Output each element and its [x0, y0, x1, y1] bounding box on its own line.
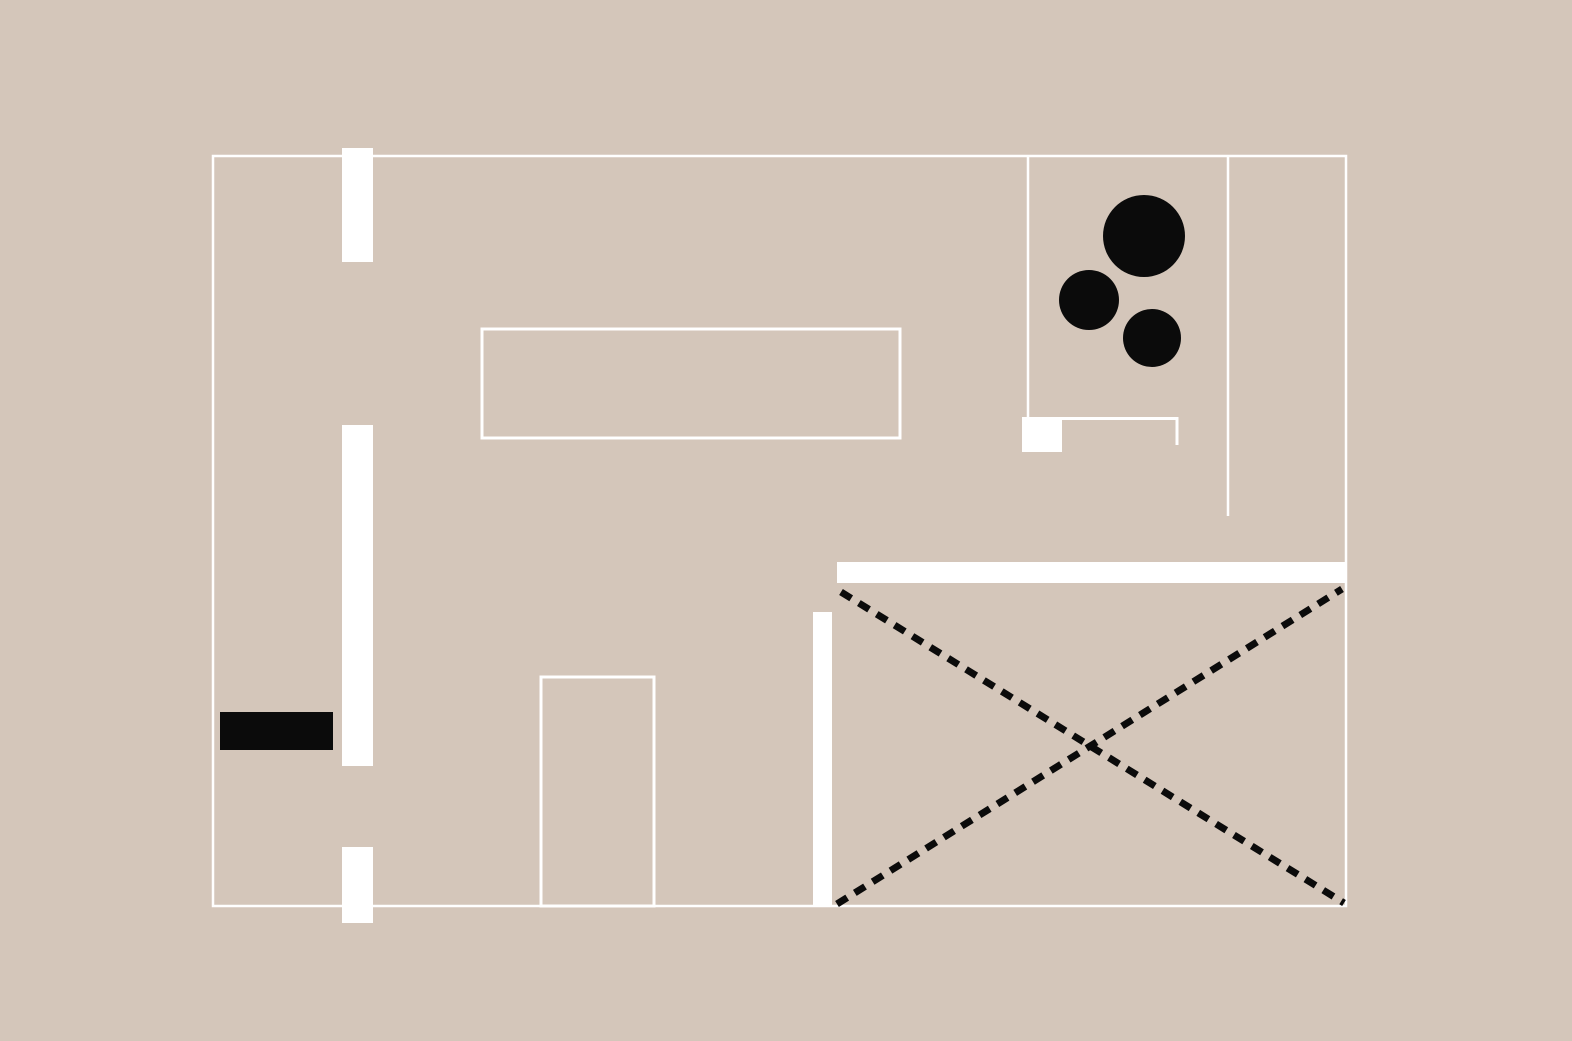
furniture-circle-medium — [1059, 270, 1119, 330]
pillar-wall-top-left — [342, 148, 373, 262]
pillar-wall-bottom-left — [342, 847, 373, 923]
furniture-circle-large — [1103, 195, 1185, 277]
pillar-wall-middle-left — [342, 425, 373, 766]
floor-plan-canvas — [0, 0, 1572, 1041]
furniture-circle-small — [1123, 309, 1181, 367]
doorway-outline-rect — [541, 677, 654, 906]
partition-wall-thick-horizontal — [837, 562, 1345, 583]
counter-outline-l-shape — [1062, 419, 1177, 446]
floor-plan-svg — [0, 0, 1572, 1041]
black-fixture-rect — [220, 712, 333, 750]
table-outline-rect — [482, 329, 900, 438]
outer-wall-boundary — [213, 156, 1346, 906]
fixture-square-white — [1022, 417, 1062, 452]
partition-wall-vertical — [813, 612, 832, 907]
